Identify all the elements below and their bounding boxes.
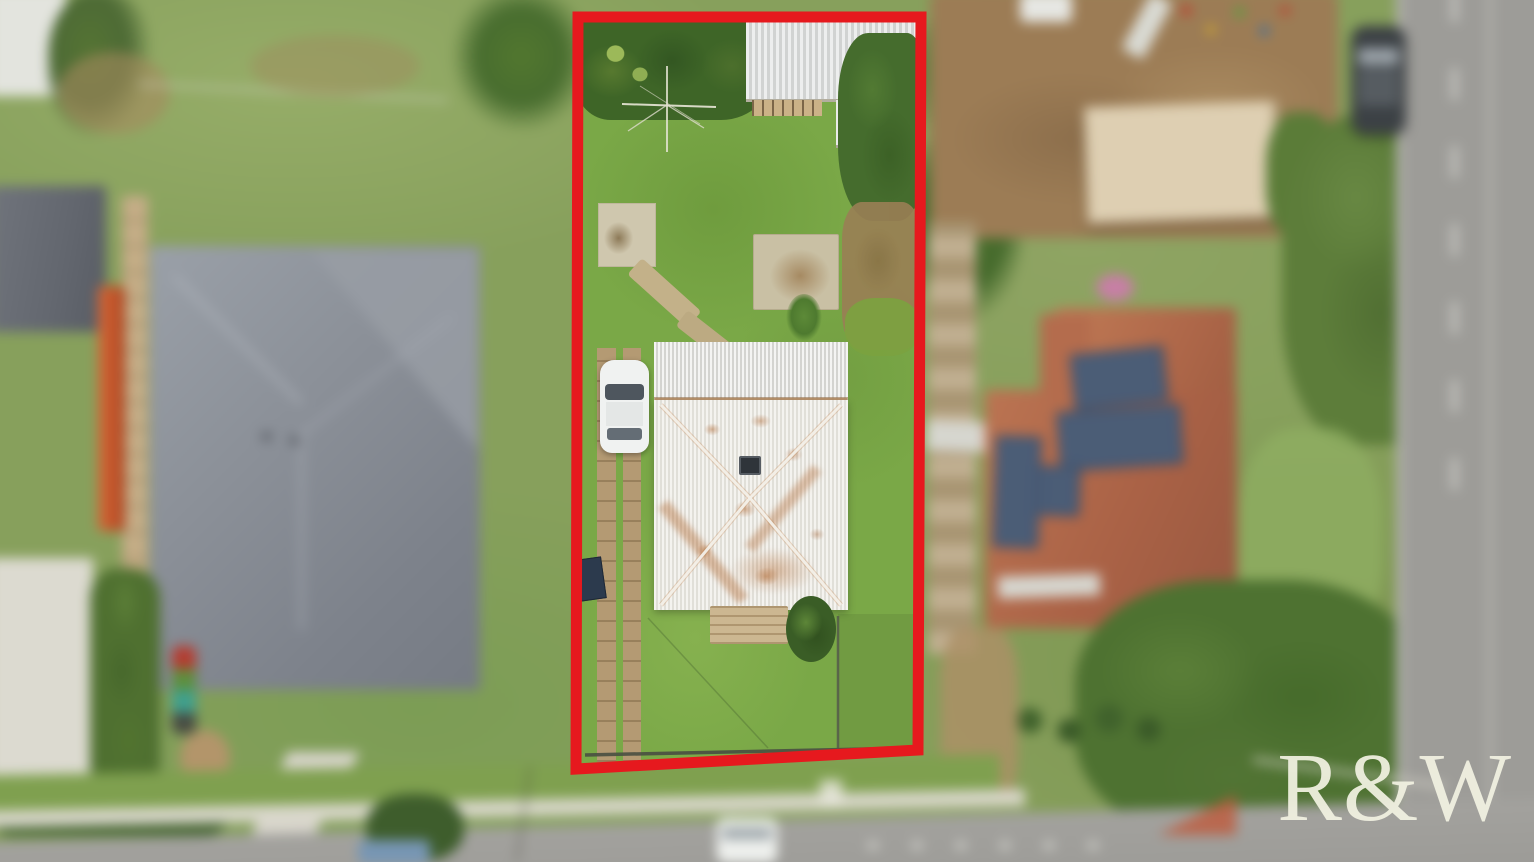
aerial-property-photo: R&W bbox=[0, 0, 1534, 862]
agency-watermark: R&W bbox=[1277, 739, 1512, 836]
property-boundary-outline bbox=[0, 0, 1534, 862]
agency-logo-text: R&W bbox=[1277, 734, 1512, 841]
